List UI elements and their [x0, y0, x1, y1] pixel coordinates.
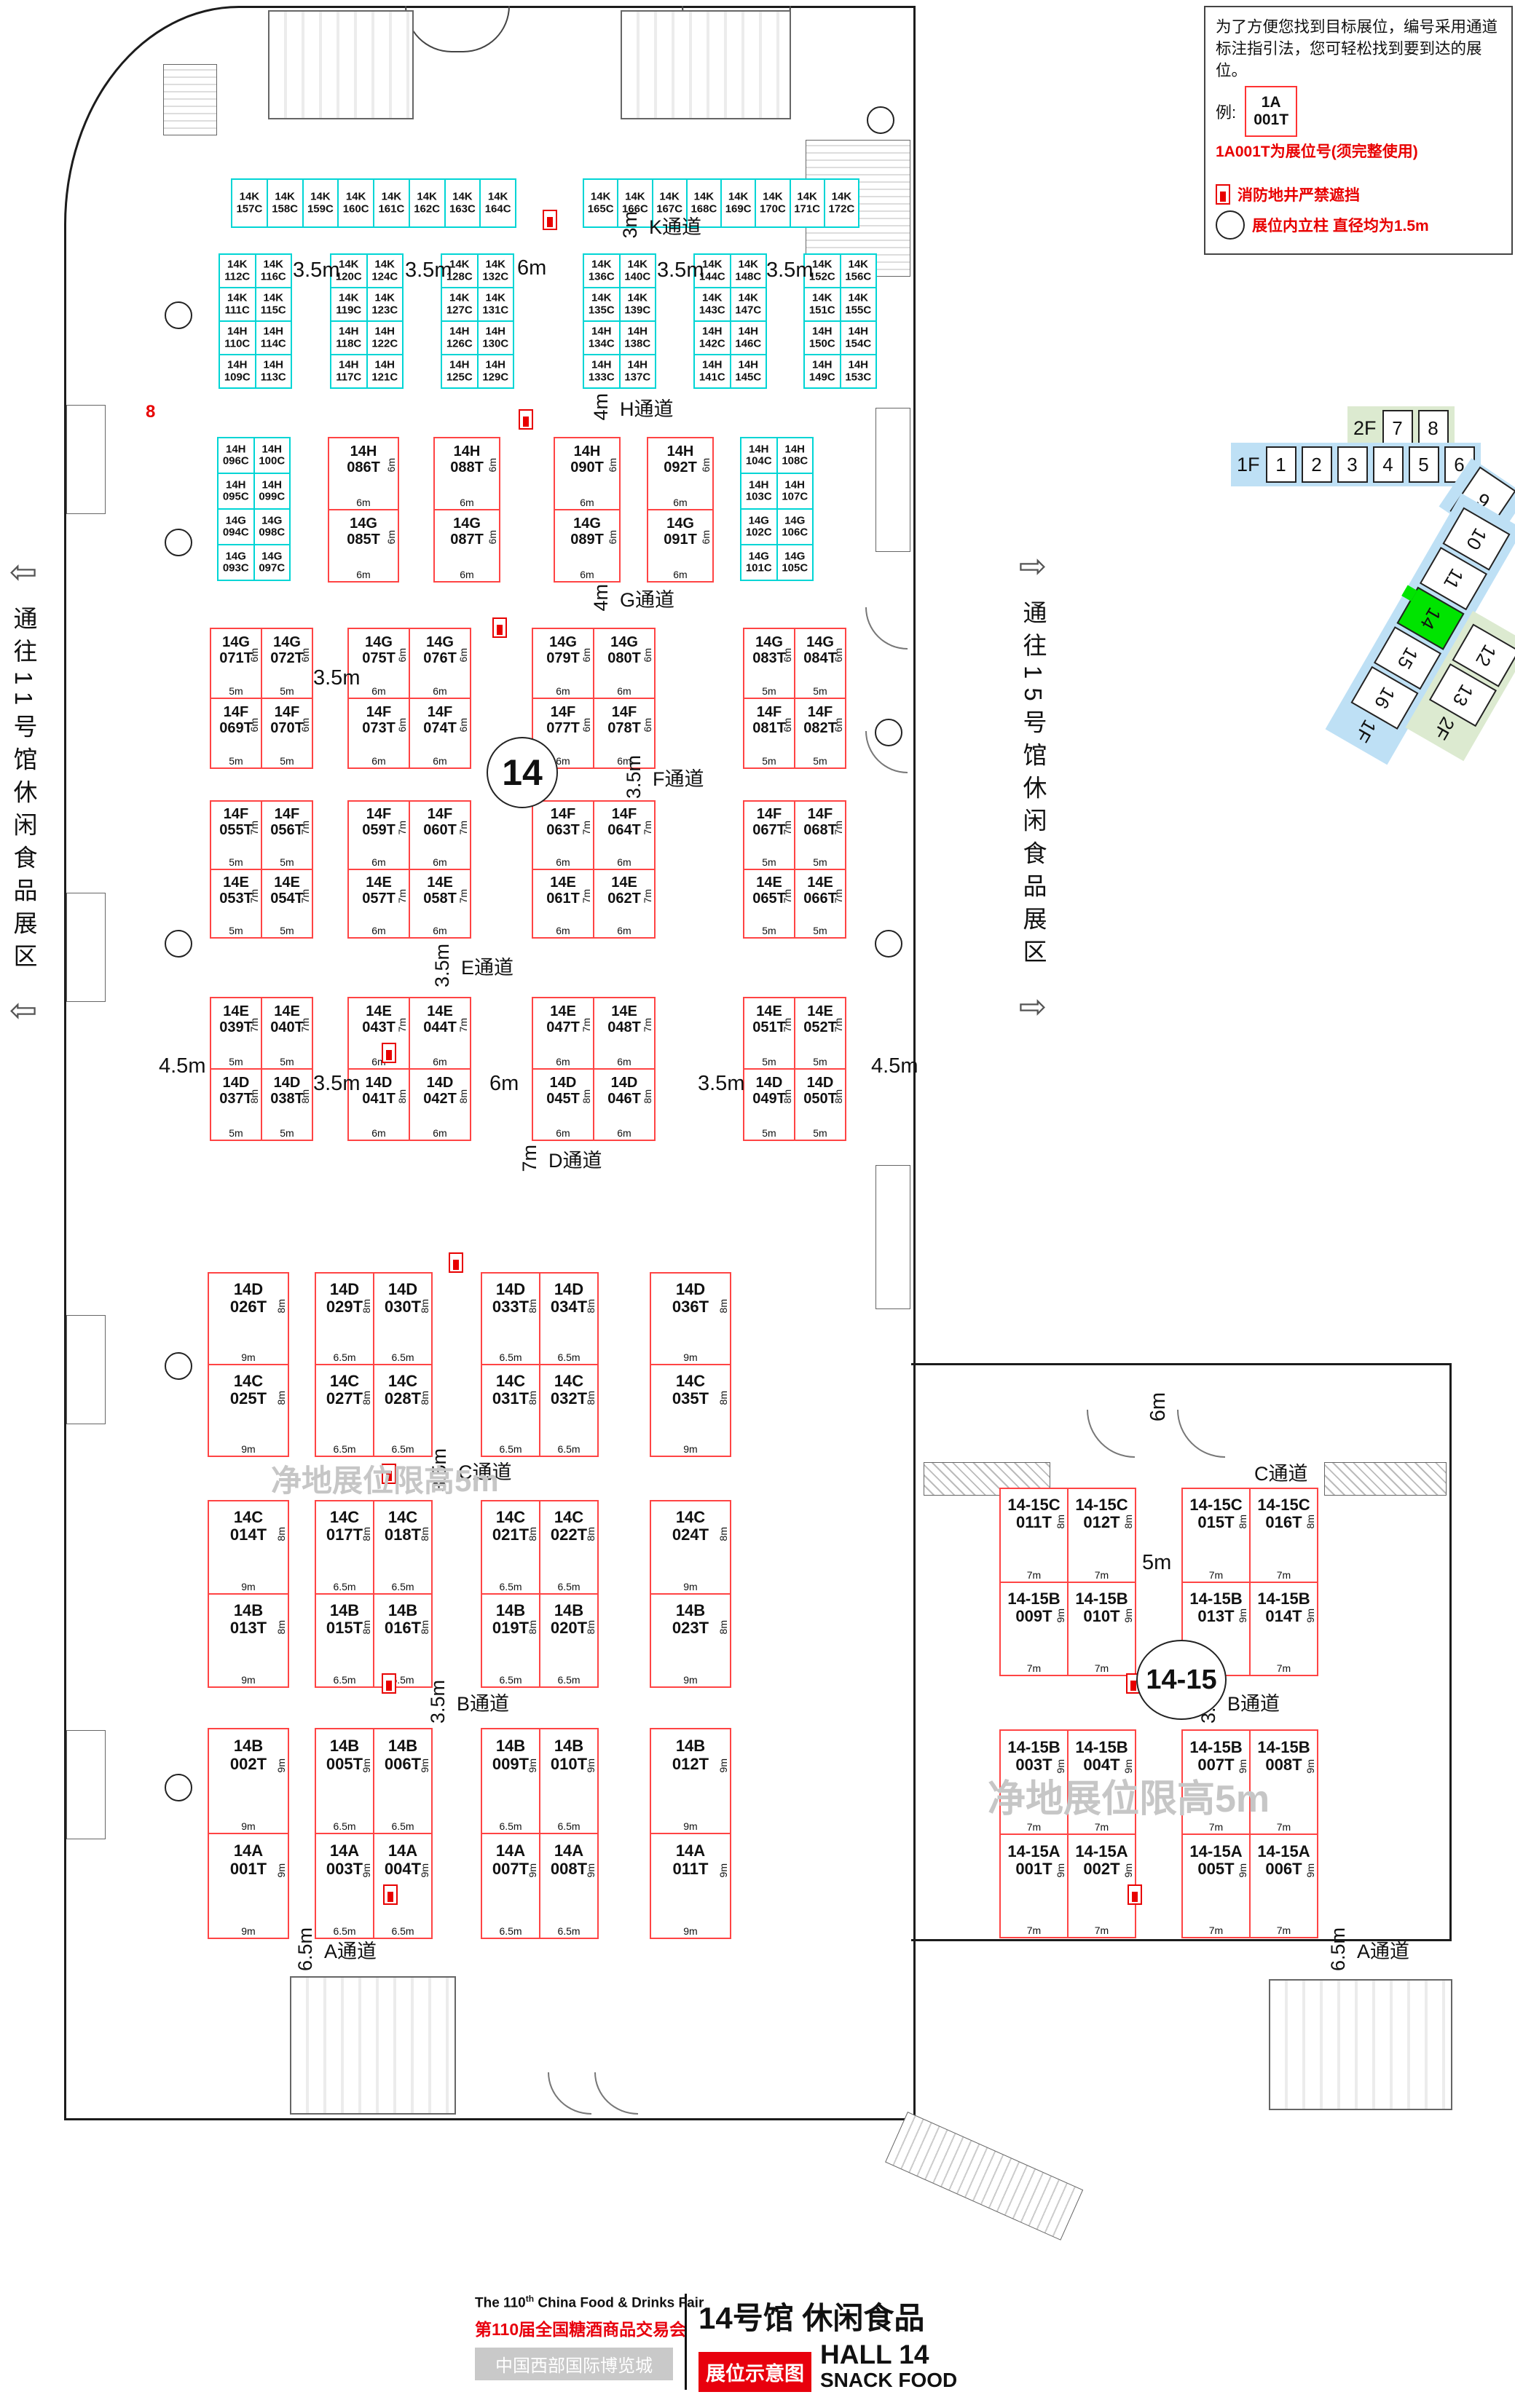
aisle-label-K通道: 3mK通道: [619, 202, 701, 248]
booth-14F-060T: 14F060T7m6m: [409, 801, 471, 869]
booth-14K-164C: 14K164C: [480, 179, 516, 227]
booth-14K-119C: 14K119C: [331, 288, 367, 321]
booth-14G-102C: 14G102C: [741, 509, 777, 545]
booth-14F-073T: 14F073T6m6m: [348, 698, 409, 768]
booth-14-15A-001T: 14-15A001T9m7m: [1000, 1834, 1068, 1938]
dimension-label: 3.5m: [313, 1072, 360, 1096]
booth-14K-124C: 14K124C: [367, 254, 404, 288]
booth-14K-127C: 14K127C: [441, 288, 478, 321]
booth-14E-043T: 14E043T7m6m: [348, 998, 409, 1069]
fair-title-cn: 第110届全国糖酒商品交易会: [475, 2316, 673, 2340]
minimap-hall-3: 3: [1337, 446, 1368, 483]
booth-14K-157C: 14K157C: [232, 179, 267, 227]
booth-14K-170C: 14K170C: [755, 179, 790, 227]
booth-14E-057T: 14E057T7m6m: [348, 869, 409, 938]
booth-14E-061T: 14E061T7m6m: [532, 869, 594, 938]
dimension-label: 3.5m: [657, 258, 704, 283]
booth-14H-125C: 14H125C: [441, 355, 478, 388]
booth-block: 14K112C14K116C14K111C14K115C14H110C14H11…: [219, 253, 292, 389]
booth-14C-025T: 14C025T8m9m: [208, 1365, 288, 1456]
booth-block: 14K136C14K140C14K135C14K139C14H134C14H13…: [583, 253, 656, 389]
booth-14K-161C: 14K161C: [374, 179, 409, 227]
fire-well-icon: [449, 1252, 463, 1273]
booth-14H-117C: 14H117C: [331, 355, 367, 388]
booth-14-15C-011T: 14-15C011T8m7m: [1000, 1488, 1068, 1582]
dimension-label: 4.5m: [871, 1054, 918, 1078]
booth-14H-145C: 14H145C: [731, 355, 767, 388]
booth-14-15B-009T: 14-15B009T9m7m: [1000, 1582, 1068, 1676]
booth-14C-021T: 14C021T8m6.5m: [481, 1501, 540, 1594]
booth-14H-113C: 14H113C: [256, 355, 292, 388]
booth-14D-050T: 14D050T8m5m: [795, 1069, 846, 1140]
booth-14-15A-005T: 14-15A005T9m7m: [1182, 1834, 1250, 1938]
minimap-hall-8: 8: [1418, 410, 1449, 446]
booth-block: 14K120C14K124C14K119C14K123C14H118C14H12…: [330, 253, 404, 389]
booth-14E-051T: 14E051T7m5m: [744, 998, 795, 1069]
booth-block: 14D026T8m9m14C025T8m9m: [208, 1272, 289, 1457]
booth-14F-055T: 14F055T7m5m: [210, 801, 261, 869]
booth-14K-111C: 14K111C: [219, 288, 256, 321]
aisle-label-A通道: 6.5mA通道: [1327, 1927, 1409, 1972]
hall-title-cn: 14号馆 休闲食品: [699, 2294, 957, 2338]
booth-block: 14F055T7m5m14F056T7m5m14E053T7m5m14E054T…: [210, 800, 313, 939]
booth-14K-171C: 14K171C: [790, 179, 825, 227]
booth-block: 14G075T6m6m14G076T6m6m14F073T6m6m14F074T…: [347, 628, 471, 769]
fair-title-en: The 110th China Food & Drinks Fair: [475, 2294, 673, 2311]
booth-14K-115C: 14K115C: [256, 288, 292, 321]
booth-14K-156C: 14K156C: [841, 254, 877, 288]
dimension-label: 3.5m: [766, 258, 813, 283]
minimap-hall-2: 2: [1302, 446, 1332, 483]
booth-14G-071T: 14G071T6m5m: [210, 628, 261, 698]
booth-14C-032T: 14C032T8m6.5m: [540, 1365, 598, 1456]
booth-14H-149C: 14H149C: [804, 355, 841, 388]
booth-block: 14C021T8m6.5m14C022T8m6.5m14B019T8m6.5m1…: [481, 1500, 599, 1688]
booth-14D-049T: 14D049T8m5m: [744, 1069, 795, 1140]
booth-14G-101C: 14G101C: [741, 545, 777, 580]
booth-block: 14B012T9m9m14A011T9m9m: [650, 1728, 731, 1939]
booth-14H-103C: 14H103C: [741, 473, 777, 509]
booth-14D-046T: 14D046T8m6m: [594, 1069, 655, 1140]
booth-14D-030T: 14D030T8m6.5m: [374, 1273, 432, 1365]
booth-14D-034T: 14D034T8m6.5m: [540, 1273, 598, 1365]
booth-14F-059T: 14F059T7m6m: [348, 801, 409, 869]
booth-block: 14F067T7m5m14F068T7m5m14E065T7m5m14E066T…: [743, 800, 846, 939]
booth-14A-001T: 14A001T9m9m: [208, 1833, 288, 1938]
booth-14G-087T: 14G087T6m6m: [434, 510, 500, 582]
booth-14A-003T: 14A003T9m6.5m: [315, 1833, 374, 1938]
example-booth-hall: 1A: [1262, 94, 1281, 111]
fire-well-icon: [519, 409, 533, 430]
booth-14C-024T: 14C024T8m9m: [650, 1501, 731, 1594]
booth-14E-047T: 14E047T7m6m: [532, 998, 594, 1069]
divider: [685, 2294, 687, 2390]
booth-14H-134C: 14H134C: [583, 321, 620, 355]
booth-14E-065T: 14E065T7m5m: [744, 869, 795, 938]
booth-14K-165C: 14K165C: [583, 179, 618, 227]
booth-14K-132C: 14K132C: [478, 254, 514, 288]
booth-14E-054T: 14E054T7m5m: [261, 869, 312, 938]
booth-14K-158C: 14K158C: [267, 179, 303, 227]
pillar-icon: [867, 106, 894, 134]
booth-14H-104C: 14H104C: [741, 438, 777, 473]
fire-well-icon: [543, 210, 557, 230]
booth-14-15C-015T: 14-15C015T8m7m: [1182, 1488, 1250, 1582]
booth-14K-135C: 14K135C: [583, 288, 620, 321]
booth-14A-008T: 14A008T9m6.5m: [540, 1833, 598, 1938]
booth-block: 14K144C14K148C14K143C14K147C14H142C14H14…: [693, 253, 767, 389]
booth-14G-105C: 14G105C: [777, 545, 814, 580]
booth-14K-163C: 14K163C: [445, 179, 481, 227]
booth-14D-038T: 14D038T8m5m: [261, 1069, 312, 1140]
height-limit-watermark: 净地展位限高5m: [988, 1768, 1270, 1823]
booth-14H-118C: 14H118C: [331, 321, 367, 355]
aisle-label-F通道: 3.5mF通道: [623, 754, 704, 800]
minimap-floor-label: 1F: [1340, 698, 1391, 764]
booth-14B-023T: 14B023T8m9m: [650, 1594, 731, 1687]
dimension-label: 3.5m: [293, 258, 339, 283]
room-number-label: 8: [146, 402, 155, 422]
booth-block: 14H096C14H100C14H095C14H099C14G094C14G09…: [217, 437, 291, 581]
booth-14H-122C: 14H122C: [367, 321, 404, 355]
stairs: [163, 64, 217, 135]
service-room: [66, 893, 106, 1002]
booth-block: 14E051T7m5m14E052T7m5m14D049T8m5m14D050T…: [743, 997, 846, 1141]
booth-14K-162C: 14K162C: [409, 179, 445, 227]
left-arrow-icon: ⇦: [9, 552, 38, 591]
booth-14H-146C: 14H146C: [731, 321, 767, 355]
booth-block: 14C014T8m9m14B013T8m9m: [208, 1500, 289, 1688]
venue-name: 中国西部国际博览城: [475, 2348, 673, 2380]
booth-14B-013T: 14B013T8m9m: [208, 1594, 288, 1687]
booth-14E-053T: 14E053T7m5m: [210, 869, 261, 938]
booth-14B-006T: 14B006T9m6.5m: [374, 1729, 432, 1833]
booth-14H-088T: 14H088T6m6m: [434, 438, 500, 510]
booth-14D-045T: 14D045T8m6m: [532, 1069, 594, 1140]
fire-well-icon: [382, 1043, 396, 1063]
pillar-icon: [1216, 210, 1245, 240]
booth-14F-074T: 14F074T6m6m: [409, 698, 471, 768]
booth-block: 14H090T6m6m14G089T6m6m: [554, 437, 621, 583]
booth-14F-068T: 14F068T7m5m: [795, 801, 846, 869]
pillar-icon: [165, 529, 192, 556]
booth-14H-100C: 14H100C: [254, 438, 291, 473]
fire-well-icon: [1128, 1884, 1142, 1905]
booth-block: 14C024T8m9m14B023T8m9m: [650, 1500, 731, 1688]
booth-14E-048T: 14E048T7m6m: [594, 998, 655, 1069]
minimap-hall-4: 4: [1373, 446, 1404, 483]
service-room: [66, 405, 106, 514]
side-label-text: 通往11号馆休闲食品展区: [6, 606, 41, 976]
booth-14D-029T: 14D029T8m6.5m: [315, 1273, 374, 1365]
booth-14-15A-006T: 14-15A006T9m7m: [1250, 1834, 1318, 1938]
booth-14H-114C: 14H114C: [256, 321, 292, 355]
right-arrow-icon: ⇨: [1019, 546, 1047, 585]
booth-14G-093C: 14G093C: [218, 545, 254, 580]
booth-14H-154C: 14H154C: [841, 321, 877, 355]
booth-14K-139C: 14K139C: [620, 288, 656, 321]
booth-14C-017T: 14C017T8m6.5m: [315, 1501, 374, 1594]
aisle-label-D通道: 7mD通道: [519, 1136, 602, 1181]
booth-14B-012T: 14B012T9m9m: [650, 1729, 731, 1833]
minimap-floor1-band: 1F 123456: [1231, 443, 1481, 486]
booth-block: 14D029T8m6.5m14D030T8m6.5m14C027T8m6.5m1…: [315, 1272, 433, 1457]
walkway-hatch: [1324, 1462, 1447, 1496]
booth-14K-112C: 14K112C: [219, 254, 256, 288]
restroom-area: [268, 10, 414, 119]
title-block: The 110th China Food & Drinks Fair 第110届…: [475, 2294, 957, 2392]
booth-14H-109C: 14H109C: [219, 355, 256, 388]
booth-14K-136C: 14K136C: [583, 254, 620, 288]
service-room: [66, 1730, 106, 1839]
legend-example-label: 例:: [1216, 100, 1236, 123]
dimension-label: 3.5m: [313, 666, 360, 690]
booth-14K-148C: 14K148C: [731, 254, 767, 288]
pillar-icon: [165, 930, 192, 958]
booth-14G-091T: 14G091T6m6m: [648, 510, 713, 582]
minimap-hall-7: 7: [1382, 410, 1413, 446]
booth-14H-110C: 14H110C: [219, 321, 256, 355]
booth-14G-098C: 14G098C: [254, 509, 291, 545]
booth-block: 14B002T9m9m14A001T9m9m: [208, 1728, 289, 1939]
booth-14K-147C: 14K147C: [731, 288, 767, 321]
right-arrow-icon: ⇨: [1019, 987, 1047, 1026]
booth-block: 14H086T6m6m14G085T6m6m: [328, 437, 399, 583]
booth-block: 14K152C14K156C14K151C14K155C14H150C14H15…: [803, 253, 877, 389]
booth-14H-086T: 14H086T6m6m: [328, 438, 398, 510]
booth-block: 14-15B003T9m7m14-15B004T9m7m14-15A001T9m…: [999, 1729, 1136, 1938]
booth-14C-027T: 14C027T8m6.5m: [315, 1365, 374, 1456]
hall-subtitle-en: SNACK FOOD: [820, 2369, 957, 2392]
plan-type-badge: 展位示意图: [699, 2352, 811, 2392]
booth-14G-106C: 14G106C: [777, 509, 814, 545]
booth-14B-020T: 14B020T8m6.5m: [540, 1594, 598, 1687]
booth-14H-141C: 14H141C: [694, 355, 731, 388]
booth-14B-010T: 14B010T9m6.5m: [540, 1729, 598, 1833]
aisle-label-C通道: C通道: [1254, 1449, 1308, 1494]
booth-14B-005T: 14B005T9m6.5m: [315, 1729, 374, 1833]
booth-14G-089T: 14G089T6m6m: [554, 510, 620, 582]
booth-block: 14D033T8m6.5m14D034T8m6.5m14C031T8m6.5m1…: [481, 1272, 599, 1457]
dimension-label: 5m: [1142, 1551, 1171, 1575]
legend-example-booth: 1A 001T: [1245, 86, 1297, 137]
booth-block: 14F059T7m6m14F060T7m6m14E057T7m6m14E058T…: [347, 800, 471, 939]
booth-14K-140C: 14K140C: [620, 254, 656, 288]
booth-block: 14H092T6m6m14G091T6m6m: [647, 437, 714, 583]
booth-14C-022T: 14C022T8m6.5m: [540, 1501, 598, 1594]
booth-14-15B-014T: 14-15B014T9m7m: [1250, 1582, 1318, 1676]
aisle-label-G通道: 4mG通道: [590, 575, 674, 620]
minimap-floor-label: 2F: [1353, 417, 1377, 440]
booth-14F-081T: 14F081T6m5m: [744, 698, 795, 768]
pillar-icon: [165, 1774, 192, 1801]
booth-14K-123C: 14K123C: [367, 288, 404, 321]
venue-minimap: 2F 78 1F 123456 9 10111415161F 12132F: [1202, 405, 1515, 871]
booth-14E-039T: 14E039T7m5m: [210, 998, 261, 1069]
booth-14D-036T: 14D036T8m9m: [650, 1273, 731, 1365]
booth-block: 14H104C14H108C14H103C14H107C14G102C14G10…: [740, 437, 814, 581]
booth-14F-069T: 14F069T6m5m: [210, 698, 261, 768]
service-room: [875, 1165, 910, 1309]
minimap-hall-1: 1: [1266, 446, 1296, 483]
minimap-hall-5: 5: [1409, 446, 1439, 483]
booth-14G-076T: 14G076T6m6m: [409, 628, 471, 698]
pillar-note: 展位内立柱 直径均为1.5m: [1252, 214, 1429, 236]
side-label-right: ⇨ 通往15号馆休闲食品展区 ⇨: [1015, 546, 1050, 1026]
booth-14-15B-010T: 14-15B010T9m7m: [1068, 1582, 1136, 1676]
booth-14H-138C: 14H138C: [620, 321, 656, 355]
aisle-label-E通道: 3.5mE通道: [431, 943, 513, 988]
booth-14K-160C: 14K160C: [338, 179, 374, 227]
booth-14C-014T: 14C014T8m9m: [208, 1501, 288, 1594]
booth-block: 14C017T8m6.5m14C018T8m6.5m14B015T8m6.5m1…: [315, 1500, 433, 1688]
booth-14G-083T: 14G083T6m5m: [744, 628, 795, 698]
booth-block: 14E039T7m5m14E040T7m5m14D037T8m5m14D038T…: [210, 997, 313, 1141]
booth-14H-142C: 14H142C: [694, 321, 731, 355]
booth-14F-064T: 14F064T7m6m: [594, 801, 655, 869]
booth-14C-035T: 14C035T8m9m: [650, 1365, 731, 1456]
dimension-label: 3.5m: [698, 1072, 744, 1096]
hall-number-badge: 14: [487, 737, 558, 808]
service-room: [66, 1315, 106, 1424]
booth-14C-018T: 14C018T8m6.5m: [374, 1501, 432, 1594]
dimension-label: 6m: [1146, 1392, 1170, 1421]
booth-14D-033T: 14D033T8m6.5m: [481, 1273, 540, 1365]
booth-14B-019T: 14B019T8m6.5m: [481, 1594, 540, 1687]
booth-14K-151C: 14K151C: [804, 288, 841, 321]
fire-note: 消防地井严禁遮挡: [1237, 183, 1360, 205]
pillar-icon: [875, 930, 902, 958]
hall-title-en: HALL 14: [820, 2341, 957, 2369]
booth-block: 14G079T6m6m14G080T6m6m14F077T6m6m14F078T…: [532, 628, 656, 769]
pillar-icon: [165, 1352, 192, 1380]
restroom-area: [621, 10, 791, 119]
dimension-label: 6m: [489, 1072, 519, 1096]
booth-14C-031T: 14C031T8m6.5m: [481, 1365, 540, 1456]
dimension-label: 3.5m: [405, 258, 452, 283]
booth-14G-084T: 14G084T6m5m: [795, 628, 846, 698]
booth-14H-108C: 14H108C: [777, 438, 814, 473]
booth-14-15A-002T: 14-15A002T9m7m: [1068, 1834, 1136, 1938]
booth-14H-092T: 14H092T6m6m: [648, 438, 713, 510]
dimension-label: 6m: [517, 256, 546, 280]
booth-14H-121C: 14H121C: [367, 355, 404, 388]
legend-note-red: 1A001T为展位号(须完整使用): [1216, 140, 1501, 162]
fire-well-icon: [383, 1884, 398, 1905]
booth-14E-058T: 14E058T7m6m: [409, 869, 471, 938]
booth-block: 14B005T9m6.5m14B006T9m6.5m14A003T9m6.5m1…: [315, 1728, 433, 1939]
booth-14K-143C: 14K143C: [694, 288, 731, 321]
booth-14G-079T: 14G079T6m6m: [532, 628, 594, 698]
booth-14D-042T: 14D042T8m6m: [409, 1069, 471, 1140]
booth-14F-056T: 14F056T7m5m: [261, 801, 312, 869]
booth-block: 14G083T6m5m14G084T6m5m14F081T6m5m14F082T…: [743, 628, 846, 769]
booth-14G-094C: 14G094C: [218, 509, 254, 545]
pillar-icon: [165, 301, 192, 329]
booth-block: 14F063T7m6m14F064T7m6m14E061T7m6m14E062T…: [532, 800, 656, 939]
booth-14F-063T: 14F063T7m6m: [532, 801, 594, 869]
aisle-label-H通道: 4mH通道: [590, 384, 674, 430]
legend-box: 为了方便您找到目标展位，编号采用通道标注指引法，您可轻松找到要到达的展位。 例:…: [1204, 6, 1513, 255]
booth-14H-099C: 14H099C: [254, 473, 291, 509]
booth-14D-037T: 14D037T8m5m: [210, 1069, 261, 1140]
booth-14K-172C: 14K172C: [825, 179, 859, 227]
legend-intro: 为了方便您找到目标展位，编号采用通道标注指引法，您可轻松找到要到达的展位。: [1216, 16, 1501, 82]
booth-14K-131C: 14K131C: [478, 288, 514, 321]
booth-14E-044T: 14E044T7m6m: [409, 998, 471, 1069]
booth-14F-082T: 14F082T6m5m: [795, 698, 846, 768]
booth-block: 14B009T9m6.5m14B010T9m6.5m14A007T9m6.5m1…: [481, 1728, 599, 1939]
side-label-text: 通往15号馆休闲食品展区: [1015, 600, 1050, 972]
booth-14-15C-012T: 14-15C012T8m7m: [1068, 1488, 1136, 1582]
left-arrow-icon: ⇦: [9, 990, 38, 1030]
booth-14K-159C: 14K159C: [303, 179, 339, 227]
booth-row-k-strip-1: 14K157C14K158C14K159C14K160C14K161C14K16…: [231, 178, 516, 228]
booth-14H-150C: 14H150C: [804, 321, 841, 355]
booth-14K-116C: 14K116C: [256, 254, 292, 288]
booth-14H-107C: 14H107C: [777, 473, 814, 509]
booth-14B-015T: 14B015T8m6.5m: [315, 1594, 374, 1687]
restroom-area: [1269, 1979, 1452, 2110]
booth-14A-004T: 14A004T9m6.5m: [374, 1833, 432, 1938]
fire-well-icon: [492, 617, 507, 638]
booth-14E-066T: 14E066T7m5m: [795, 869, 846, 938]
booth-block: 14H088T6m6m14G087T6m6m: [433, 437, 500, 583]
floor-plan: 8 14K157C14K158C14K159C14K160C14K161C14K…: [0, 0, 1515, 2408]
booth-14G-085T: 14G085T6m6m: [328, 510, 398, 582]
booth-14E-062T: 14E062T7m6m: [594, 869, 655, 938]
booth-14F-070T: 14F070T6m5m: [261, 698, 312, 768]
booth-block: 14E043T7m6m14E044T7m6m14D041T8m6m14D042T…: [347, 997, 471, 1141]
booth-14G-097C: 14G097C: [254, 545, 291, 580]
booth-14H-130C: 14H130C: [478, 321, 514, 355]
service-room: [875, 408, 910, 552]
annex-number-badge: 14-15: [1136, 1640, 1227, 1720]
booth-block: 14E047T7m6m14E048T7m6m14D045T8m6m14D046T…: [532, 997, 656, 1141]
dimension-label: 4.5m: [159, 1054, 205, 1078]
aisle-label-B通道: 3.5mB通道: [427, 1679, 509, 1724]
booth-14-15C-016T: 14-15C016T8m7m: [1250, 1488, 1318, 1582]
booth-14F-067T: 14F067T7m5m: [744, 801, 795, 869]
booth-14A-011T: 14A011T9m9m: [650, 1833, 731, 1938]
height-limit-watermark: 净地展位限高5m: [271, 1456, 499, 1501]
booth-14B-009T: 14B009T9m6.5m: [481, 1729, 540, 1833]
booth-block: 14G071T6m5m14G072T6m5m14F069T6m5m14F070T…: [210, 628, 313, 769]
side-label-left: ⇦ 通往11号馆休闲食品展区 ⇦: [6, 552, 41, 1030]
booth-14B-002T: 14B002T9m9m: [208, 1729, 288, 1833]
booth-block: 14-15C011T8m7m14-15C012T8m7m14-15B009T9m…: [999, 1488, 1136, 1676]
booth-14H-137C: 14H137C: [620, 355, 656, 388]
minimap-floor-label: 2F: [1420, 698, 1468, 759]
booth-14H-126C: 14H126C: [441, 321, 478, 355]
booth-14H-153C: 14H153C: [841, 355, 877, 388]
booth-14G-072T: 14G072T6m5m: [261, 628, 312, 698]
booth-14D-026T: 14D026T8m9m: [208, 1273, 288, 1365]
booth-14C-028T: 14C028T8m6.5m: [374, 1365, 432, 1456]
fire-well-icon: [382, 1673, 396, 1694]
example-booth-number: 001T: [1254, 111, 1288, 129]
booth-block: 14-15B007T9m7m14-15B008T9m7m14-15A005T9m…: [1181, 1729, 1318, 1938]
booth-14K-169C: 14K169C: [721, 179, 755, 227]
minimap-floor-label: 1F: [1237, 454, 1260, 476]
aisle-label-A通道: 6.5mA通道: [294, 1927, 377, 1972]
booth-14H-096C: 14H096C: [218, 438, 254, 473]
booth-14K-155C: 14K155C: [841, 288, 877, 321]
booth-14E-040T: 14E040T7m5m: [261, 998, 312, 1069]
booth-14G-080T: 14G080T6m6m: [594, 628, 655, 698]
booth-block: 14D036T8m9m14C035T8m9m: [650, 1272, 731, 1457]
booth-14H-090T: 14H090T6m6m: [554, 438, 620, 510]
